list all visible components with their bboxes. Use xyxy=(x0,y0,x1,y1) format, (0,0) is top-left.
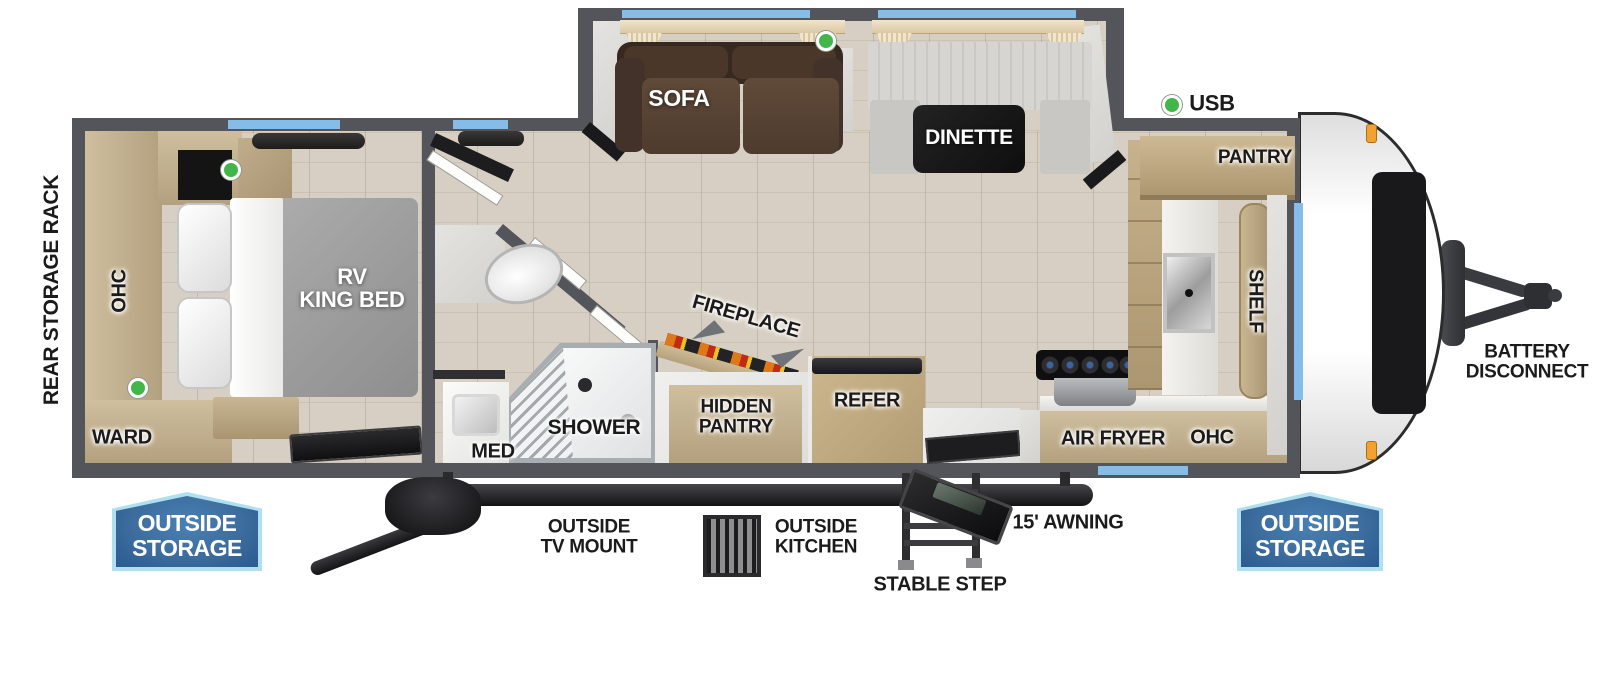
outside-storage-badge-left: OUTSIDE STORAGE xyxy=(112,492,262,571)
bedroom-ohc-label: OHC xyxy=(110,269,131,313)
sofa-seat-right xyxy=(743,78,839,154)
med-sink xyxy=(452,394,500,436)
sofa-label: SOFA xyxy=(648,87,709,111)
oven-front xyxy=(1054,378,1136,406)
pantry-label: PANTRY xyxy=(1218,148,1292,168)
shelf-label: SHELF xyxy=(1245,269,1266,333)
bedroom-tv xyxy=(252,133,365,149)
bed-sheet xyxy=(230,198,285,397)
awning-bracket-right xyxy=(1060,472,1070,486)
refer-top xyxy=(812,358,922,374)
outside-storage-badge-right-label: OUTSIDE STORAGE xyxy=(1255,503,1365,559)
hall-window xyxy=(453,120,508,129)
front-wall-window xyxy=(1294,203,1303,400)
wall-bed-bath-divider xyxy=(422,131,435,463)
outside-kitchen-grill xyxy=(703,515,761,577)
usb-legend-label: USB xyxy=(1189,93,1235,116)
outside-kitchen-label: OUTSIDE KITCHEN xyxy=(775,517,857,557)
usb-legend-marker xyxy=(1162,95,1182,115)
outside-storage-badge-right: OUTSIDE STORAGE xyxy=(1237,492,1383,571)
kitchen-sink-drain xyxy=(1185,289,1193,297)
usb-marker-slideout xyxy=(816,31,836,51)
ward-label: WARD xyxy=(92,428,152,449)
stable-step-label: STABLE STEP xyxy=(873,575,1006,596)
dinette-label: DINETTE xyxy=(925,127,1013,149)
sofa-valance xyxy=(620,20,845,34)
rv-king-bed-label: RV KING BED xyxy=(299,266,404,312)
shower-drain xyxy=(578,378,592,392)
wall-top-right-segment xyxy=(1124,118,1300,131)
stable-step-foot-right xyxy=(966,558,982,568)
bed-pillow-top xyxy=(177,203,232,293)
hidden-pantry-label: HIDDEN PANTRY xyxy=(699,397,773,437)
rear-storage-rack-label: REAR STORAGE RACK xyxy=(41,175,63,405)
shower-label: SHOWER xyxy=(548,417,641,439)
clearance-light-bottom xyxy=(1366,441,1377,460)
dinette-bench-right xyxy=(1040,100,1090,174)
outside-storage-badge-left-fill: OUTSIDE STORAGE xyxy=(116,496,258,567)
front-interior-wall xyxy=(1267,195,1287,455)
kitchen-entry-wall xyxy=(1020,410,1042,463)
front-window xyxy=(1372,172,1426,414)
clearance-light-top xyxy=(1366,124,1377,143)
bed-footboard-drawers xyxy=(213,397,299,439)
bath-wall-separator xyxy=(433,370,505,379)
sofa-slide-window xyxy=(622,10,810,18)
tv-mount-base xyxy=(385,477,481,535)
kitchen-ohc-label: OHC xyxy=(1190,428,1234,449)
hall-tv xyxy=(458,131,524,146)
bedroom-window xyxy=(228,120,340,129)
stable-step-foot-left xyxy=(898,560,914,570)
rv-floorplan-diagram: OUTSIDE STORAGE OUTSIDE STORAGE REAR STO… xyxy=(0,0,1600,698)
dinette-slide-window xyxy=(878,10,1076,18)
bed-pillow-bottom xyxy=(177,297,232,389)
outside-storage-badge-right-fill: OUTSIDE STORAGE xyxy=(1241,496,1379,567)
usb-marker-bedroom-nightstand xyxy=(221,160,241,180)
refer-label: REFER xyxy=(834,391,900,412)
stove-cooktop xyxy=(1036,350,1138,380)
wall-rear-left xyxy=(72,118,85,478)
outside-tv-mount-label: OUTSIDE TV MOUNT xyxy=(541,517,638,557)
dinette-valance xyxy=(872,20,1084,34)
awning-label: 15' AWNING xyxy=(1012,513,1123,534)
entry-step-door xyxy=(898,468,1014,546)
slideout-wall-left xyxy=(578,8,593,131)
med-label: MED xyxy=(471,442,515,463)
outside-storage-badge-left-label: OUTSIDE STORAGE xyxy=(132,503,242,559)
air-fryer-label: AIR FRYER xyxy=(1061,429,1165,450)
stable-step-rung-4 xyxy=(904,540,978,546)
battery-disconnect-label: BATTERY DISCONNECT xyxy=(1466,342,1589,382)
hitch-pin xyxy=(1548,289,1562,302)
sofa-armrest-left xyxy=(615,58,645,152)
usb-marker-bedroom-ward xyxy=(128,378,148,398)
kitchen-bottom-window xyxy=(1098,466,1188,475)
